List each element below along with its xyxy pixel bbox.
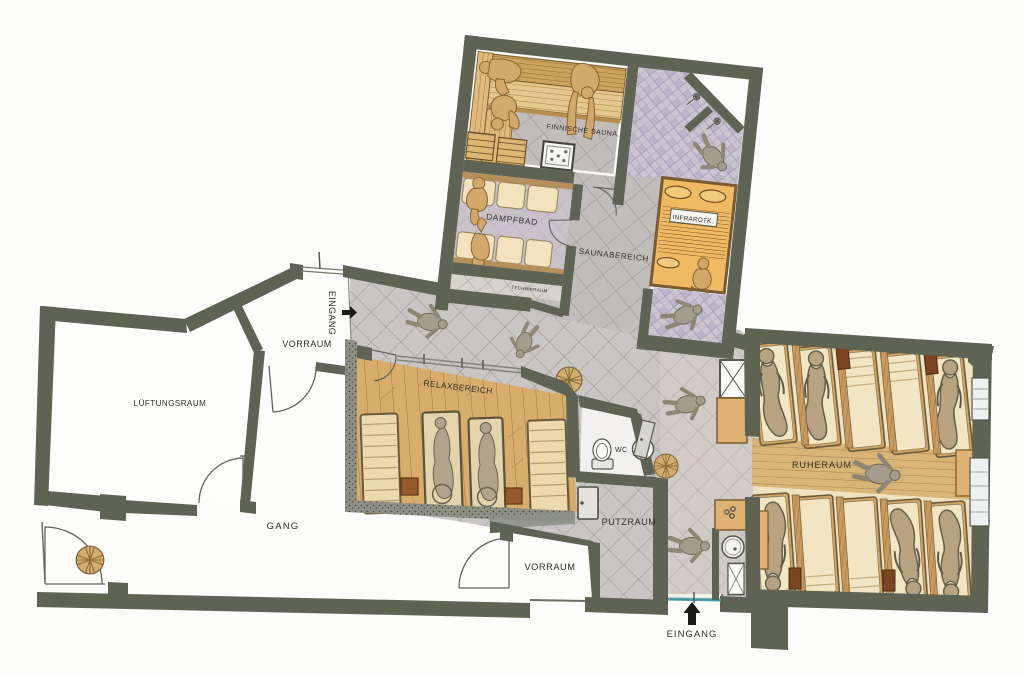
svg-text:LÜFTUNGSRAUM: LÜFTUNGSRAUM [134, 399, 207, 408]
svg-text:GANG: GANG [267, 521, 300, 532]
svg-text:VORRAUM: VORRAUM [524, 562, 575, 572]
svg-text:RUHERAUM: RUHERAUM [792, 460, 852, 470]
svg-text:EINGANG: EINGANG [667, 629, 718, 640]
svg-text:PUTZRAUM: PUTZRAUM [602, 517, 657, 527]
svg-text:VORRAUM: VORRAUM [282, 339, 332, 349]
svg-text:WC: WC [615, 447, 627, 454]
svg-text:EINGANG: EINGANG [327, 291, 337, 335]
